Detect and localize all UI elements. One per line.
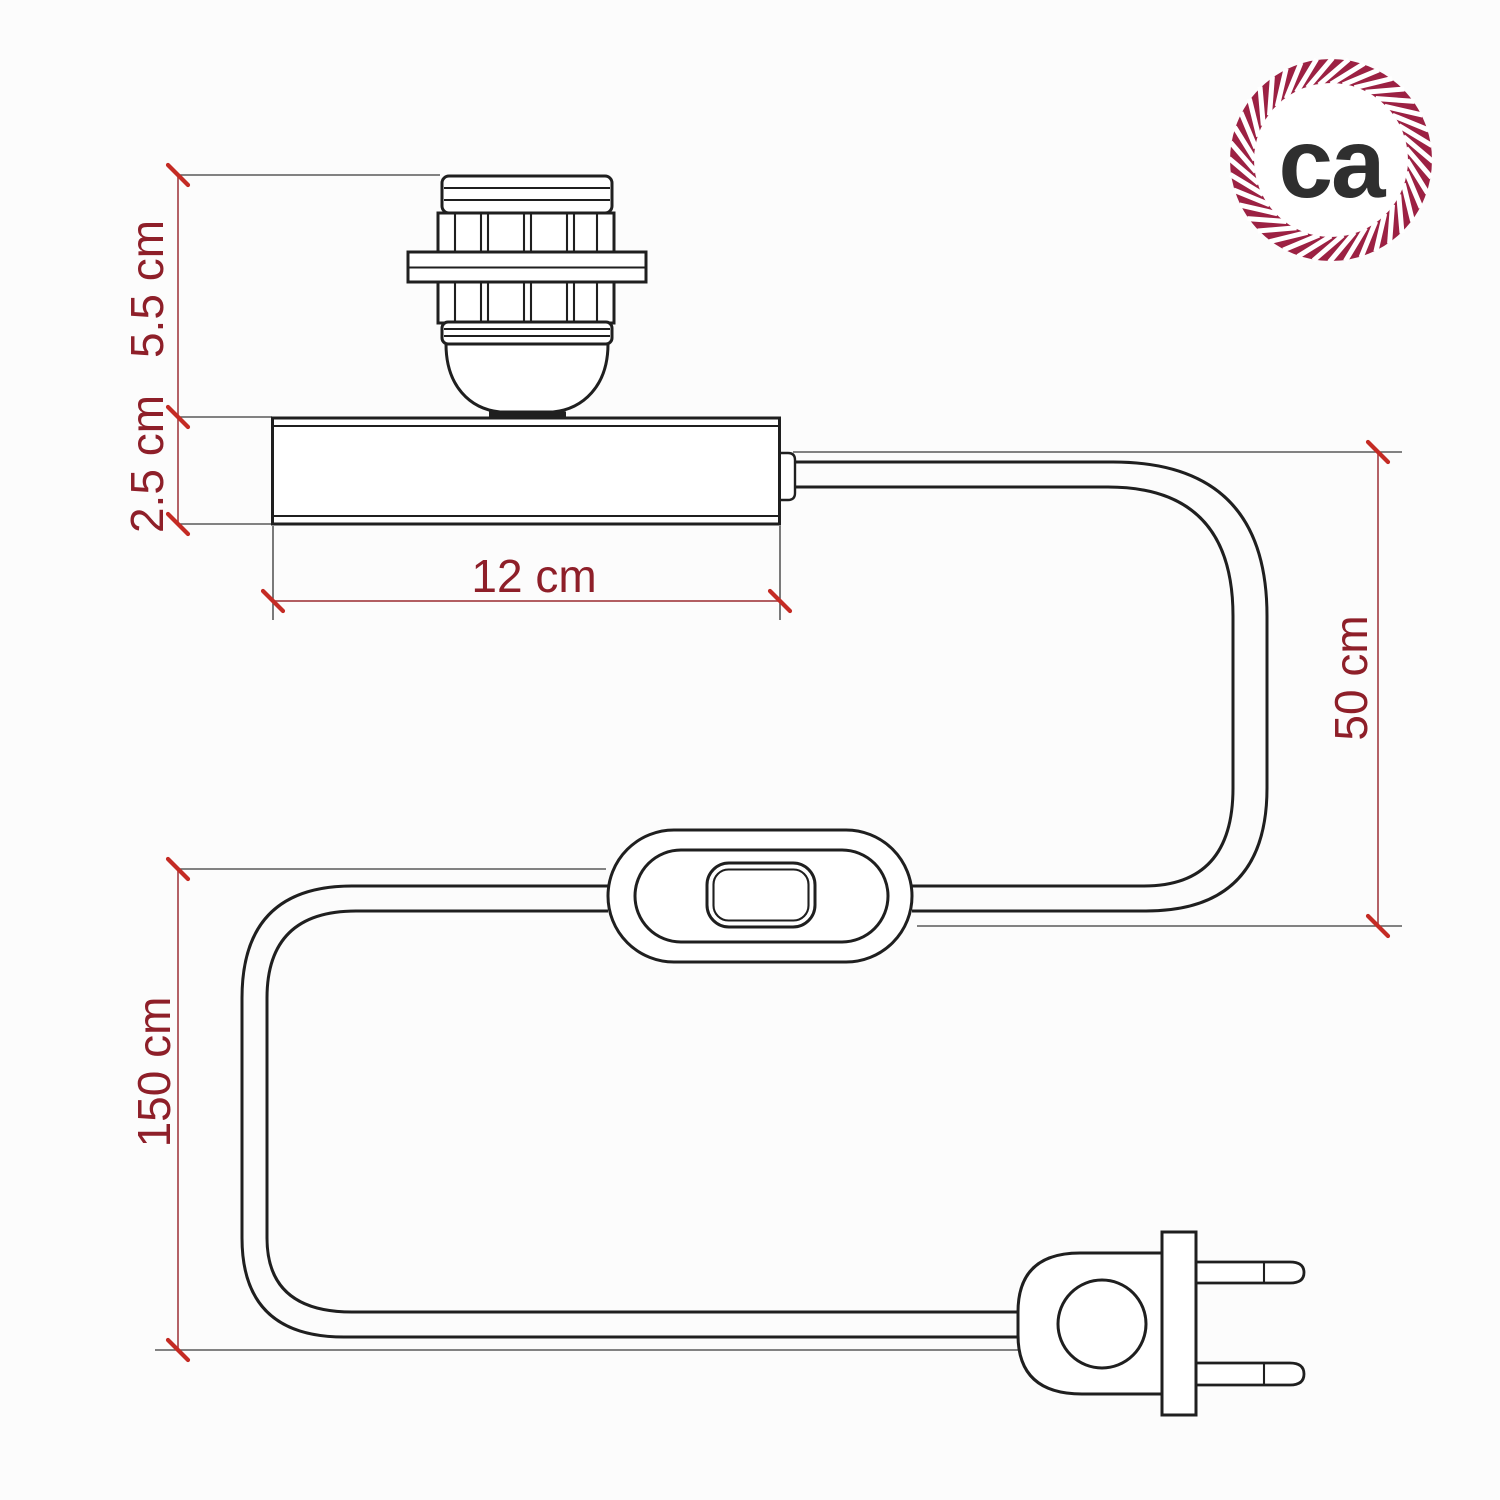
logo-rope-strand	[1270, 77, 1273, 116]
base-cable-grommet	[779, 453, 795, 500]
socket-upper-thread	[442, 176, 612, 213]
inline-switch-drawing	[608, 830, 912, 962]
dimension-label-socket-height: 5.5 cm	[124, 220, 170, 358]
logo-rope-strand	[1399, 195, 1402, 234]
lamp-dimension-drawing: ca	[0, 0, 1500, 1500]
lamp-base-drawing	[273, 418, 796, 524]
logo-rope-strand	[1390, 205, 1393, 244]
plug-grip-circle	[1058, 1280, 1146, 1368]
logo-rope-strand	[1376, 99, 1415, 102]
dimension-label-base-width: 12 cm	[471, 553, 596, 599]
diagram-canvas: ca 5.5 cm 2.5 cm 12 cm 50 cm 150 cm	[0, 0, 1500, 1500]
cable-left-outer-edge	[242, 886, 1022, 1337]
dimension-lines	[178, 175, 1378, 1350]
dimension-label-cable-drop: 50 cm	[1328, 615, 1374, 740]
base-body	[273, 418, 780, 524]
lamp-socket-drawing	[408, 176, 646, 415]
switch-rocker-button	[707, 863, 815, 927]
cable-left-inner-edge	[267, 911, 1022, 1312]
socket-cup	[446, 344, 608, 412]
dimension-label-cable-length: 150 cm	[131, 997, 177, 1148]
dimension-label-base-height: 2.5 cm	[124, 395, 170, 533]
logo-text: ca	[1278, 108, 1387, 218]
plug-pin-bottom	[1196, 1363, 1304, 1385]
plug-face-plate	[1162, 1232, 1196, 1415]
logo-rope-strand	[1248, 219, 1287, 222]
brand-logo: ca	[1229, 58, 1433, 262]
logo-rope-strand	[1258, 228, 1297, 231]
power-plug-drawing	[1018, 1232, 1304, 1415]
dimension-ticks	[168, 165, 1388, 1360]
logo-rope-strand	[1260, 87, 1263, 126]
socket-lower-thread	[442, 322, 612, 344]
cable-right-inner-edge	[793, 487, 1233, 886]
plug-pin-top	[1196, 1262, 1304, 1283]
extension-lines	[155, 175, 1402, 1350]
logo-rope-strand	[1366, 89, 1405, 92]
